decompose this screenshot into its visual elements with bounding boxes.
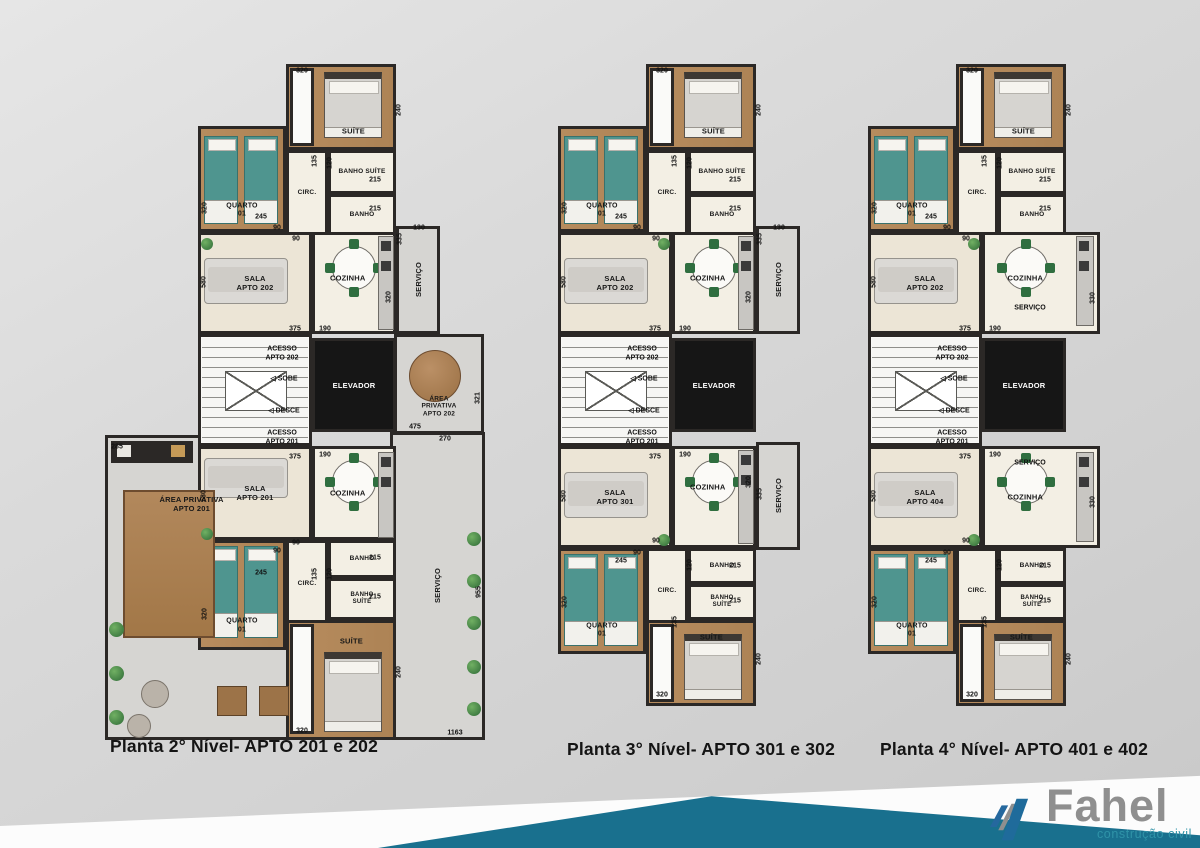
dimension-label: 90 — [962, 236, 970, 245]
dimension-label: 215 — [729, 563, 741, 572]
counter — [1076, 236, 1094, 326]
table-round — [332, 246, 376, 290]
dimension-label: 580 — [561, 490, 570, 502]
dimension-label: 320 — [872, 596, 881, 608]
dimension-label: 240 — [396, 104, 405, 116]
room-label: CIRC. — [658, 189, 677, 197]
dimension-label: 215 — [729, 598, 741, 607]
room-label: SALA APTO 202 — [237, 274, 274, 292]
dimension-label: 135 — [312, 155, 321, 167]
room-label: SALA APTO 202 — [907, 274, 944, 292]
planter — [259, 686, 289, 716]
dimension-label: 285 — [111, 444, 123, 453]
room-label: QUARTO 01 — [892, 623, 933, 640]
dimension-label: 135 — [982, 616, 991, 628]
pouf — [141, 680, 169, 708]
dimension-label: 245 — [255, 570, 267, 579]
plant — [467, 532, 481, 546]
room-banho-inferior: BANHO — [688, 548, 756, 584]
dimension-label: 135 — [982, 155, 991, 167]
dimension-label: 90 — [962, 538, 970, 547]
dimension-label: 190 — [989, 326, 1001, 335]
dimension-label: 320 — [872, 202, 881, 214]
room-banho-suite-superior: BANHO SUÍTE — [328, 150, 396, 194]
room-banho-suite-inferior: BANHO SUÍTE — [998, 584, 1066, 620]
dimension-label: 90 — [292, 540, 300, 549]
room-label: SERVIÇO — [774, 478, 783, 513]
plant — [467, 616, 481, 630]
room-banho-suite-superior: BANHO SUÍTE — [998, 150, 1066, 194]
room-label: ELEVADOR — [693, 381, 736, 390]
dimension-label: 90 — [633, 225, 641, 234]
plant — [109, 666, 124, 681]
dimension-label: 320 — [746, 476, 755, 488]
dimension-label: 245 — [255, 214, 267, 223]
dimension-label: 320 — [746, 291, 755, 303]
dimension-label: 215 — [729, 206, 741, 215]
room-closet-superior — [960, 68, 984, 146]
dimension-label: 120 — [327, 568, 336, 580]
room-label: ÁREA PRIVATIVA APTO 202 — [418, 395, 460, 418]
dimension-label: 320 — [562, 596, 571, 608]
room-elevador: ELEVADOR — [672, 338, 756, 432]
room-closet-inferior — [960, 624, 984, 702]
pouf — [127, 714, 151, 738]
planter — [217, 686, 247, 716]
room-banho-suite-inferior: BANHO SUÍTE — [328, 578, 396, 620]
floorplan-flyer: ÁREA PRIVATIVA APTO 201SERVIÇOÁREA PRIVA… — [0, 0, 1200, 848]
dimension-label: 320 — [296, 68, 308, 77]
room-label: CIRC. — [968, 189, 987, 197]
floorplan-level-2: ÁREA PRIVATIVA APTO 201SERVIÇOÁREA PRIVA… — [105, 62, 490, 740]
dimension-label: 375 — [649, 326, 661, 335]
dimension-label: 245 — [925, 214, 937, 223]
dimension-label: ◁ DESCE — [628, 408, 659, 417]
counter — [738, 236, 754, 330]
room-label: CIRC. — [298, 189, 317, 197]
dimension-label: 320 — [562, 202, 571, 214]
dimension-label: 215 — [1039, 598, 1051, 607]
dimension-label: 335 — [757, 488, 766, 500]
dimension-label: 190 — [989, 452, 1001, 461]
table-round — [1004, 246, 1048, 290]
dimension-label: 120 — [997, 157, 1006, 169]
dimension-label: 320 — [296, 728, 308, 737]
dimension-label: ACESSO APTO 201 — [266, 429, 299, 447]
dimension-label: ACESSO APTO 201 — [626, 429, 659, 447]
fahel-logo-text: Fahel — [1046, 780, 1169, 832]
dimension-label: 580 — [201, 276, 210, 288]
room-label: SALA APTO 404 — [907, 488, 944, 506]
dimension-label: 375 — [959, 326, 971, 335]
room-label: SUÍTE — [700, 633, 723, 642]
room-circulacao-inferior: CIRC. — [286, 540, 328, 628]
room-label: SUÍTE — [342, 127, 365, 136]
dimension-label: 245 — [925, 558, 937, 567]
plant — [467, 660, 481, 674]
dimension-label: 120 — [327, 157, 336, 169]
room-banho-suite-superior: BANHO SUÍTE — [688, 150, 756, 194]
counter-dark — [111, 441, 193, 463]
dimension-label: 215 — [1039, 206, 1051, 215]
room-label: BANHO SUÍTE — [1009, 168, 1056, 176]
room-banho-superior: BANHO — [998, 194, 1066, 236]
room-elevador: ELEVADOR — [982, 338, 1066, 432]
dimension-label: 130 — [773, 225, 785, 234]
room-banho-inferior: BANHO — [328, 540, 396, 578]
dimension-label: 120 — [687, 157, 696, 169]
bed-double — [994, 634, 1052, 700]
dimension-label: 375 — [649, 454, 661, 463]
dimension-label: 215 — [369, 555, 381, 564]
room-label: BANHO SUÍTE — [699, 168, 746, 176]
dimension-label: 120 — [997, 559, 1006, 571]
dimension-label: 580 — [201, 490, 210, 502]
dimension-label: 955 — [476, 586, 485, 598]
dimension-label: 245 — [615, 214, 627, 223]
dimension-label: 135 — [672, 616, 681, 628]
dimension-label: 215 — [369, 206, 381, 215]
room-label: SALA APTO 202 — [597, 274, 634, 292]
dimension-label: ACESSO APTO 202 — [266, 345, 299, 363]
dimension-label: 215 — [369, 594, 381, 603]
dimension-label: 335 — [397, 233, 406, 245]
dimension-label: 240 — [756, 104, 765, 116]
dimension-label: 475 — [409, 424, 421, 433]
dimension-label: 190 — [679, 452, 691, 461]
room-label: CIRC. — [658, 587, 677, 595]
room-elevador: ELEVADOR — [312, 338, 396, 432]
dimension-label: 135 — [312, 568, 321, 580]
dimension-label: 335 — [757, 233, 766, 245]
dimension-label: 375 — [289, 454, 301, 463]
room-label: BANHO SUÍTE — [339, 168, 386, 176]
dimension-label: 240 — [1066, 104, 1075, 116]
room-label: ÁREA PRIVATIVA APTO 201 — [159, 495, 223, 513]
dimension-label: 240 — [756, 653, 765, 665]
dimension-label: ACESSO APTO 202 — [626, 345, 659, 363]
room-label: COZINHA — [1008, 493, 1044, 502]
room-circulacao-superior: CIRC. — [286, 150, 328, 236]
dimension-label: 245 — [615, 558, 627, 567]
dimension-label: ◁ DESCE — [268, 408, 299, 417]
dimension-label: 90 — [273, 548, 281, 557]
dimension-label: 215 — [1039, 177, 1051, 186]
bed-double — [684, 634, 742, 700]
dimension-label: ◁ SOBE — [270, 376, 297, 385]
dimension-label: SERVIÇO — [1014, 460, 1045, 469]
counter — [738, 450, 754, 544]
room-label: SUÍTE — [1010, 633, 1033, 642]
room-label: SERVIÇO — [433, 568, 442, 603]
dimension-label: 190 — [319, 326, 331, 335]
room-label: ELEVADOR — [1003, 381, 1046, 390]
room-label: QUARTO 01 — [222, 618, 263, 635]
dimension-label: 90 — [652, 538, 660, 547]
room-banho-superior: BANHO — [328, 194, 396, 236]
room-label: CIRC. — [298, 580, 317, 588]
dimension-label: 215 — [729, 177, 741, 186]
dimension-label: 580 — [871, 276, 880, 288]
room-label: SERVIÇO — [774, 262, 783, 297]
room-banho-superior: BANHO — [688, 194, 756, 236]
plant — [109, 622, 124, 637]
room-banho-suite-inferior: BANHO SUÍTE — [688, 584, 756, 620]
room-circulacao-superior: CIRC. — [956, 150, 998, 236]
dimension-label: 190 — [679, 326, 691, 335]
room-label: COZINHA — [690, 483, 726, 492]
room-label: COZINHA — [690, 274, 726, 283]
dimension-label: 240 — [1066, 653, 1075, 665]
floorplan-level-4: SUÍTEQUARTO 01CIRC.BANHO SUÍTEBANHOSALA … — [868, 62, 1103, 707]
room-closet-superior — [650, 68, 674, 146]
dimension-label: 375 — [289, 326, 301, 335]
fahel-logo-tagline: construção civil — [1056, 827, 1192, 841]
dimension-label: 580 — [561, 276, 570, 288]
dimension-label: 90 — [292, 236, 300, 245]
room-circulacao-superior: CIRC. — [646, 150, 688, 236]
dimension-label: 90 — [943, 225, 951, 234]
counter — [378, 452, 394, 538]
dimension-label: 130 — [413, 225, 425, 234]
dimension-label: 1163 — [447, 730, 462, 739]
dimension-label: SERVIÇO — [1014, 305, 1045, 314]
dimension-label: ACESSO APTO 202 — [936, 345, 969, 363]
dimension-label: 330 — [1090, 496, 1099, 508]
room-label: COZINHA — [330, 274, 366, 283]
caption-level-3: Planta 3° Nível- APTO 301 e 302 — [567, 739, 835, 760]
dimension-label: 320 — [966, 68, 978, 77]
room-label: ELEVADOR — [333, 381, 376, 390]
dimension-label: 120 — [687, 559, 696, 571]
caption-level-2: Planta 2° Nível- APTO 201 e 202 — [110, 736, 378, 757]
plant — [201, 238, 213, 250]
dimension-label: 215 — [369, 177, 381, 186]
dimension-label: 90 — [943, 550, 951, 559]
dimension-label: 135 — [672, 155, 681, 167]
plant — [201, 528, 213, 540]
dimension-label: 320 — [202, 202, 211, 214]
room-label: COZINHA — [330, 489, 366, 498]
room-label: SALA APTO 301 — [597, 488, 634, 506]
room-label: SUÍTE — [702, 127, 725, 136]
room-label: QUARTO 01 — [582, 623, 623, 640]
floorplan-level-3: SUÍTEQUARTO 01CIRC.BANHO SUÍTEBANHOSALA … — [558, 62, 805, 707]
plant — [109, 710, 124, 725]
dimension-label: 270 — [439, 436, 451, 445]
dimension-label: 320 — [202, 608, 211, 620]
fahel-logo-icon — [985, 790, 1043, 844]
dimension-label: 190 — [319, 452, 331, 461]
bed-double — [324, 652, 382, 732]
room-label: SERVIÇO — [414, 262, 423, 297]
plant — [467, 702, 481, 716]
dimension-label: 375 — [959, 454, 971, 463]
room-closet-superior — [290, 68, 314, 146]
room-label: COZINHA — [1008, 274, 1044, 283]
dimension-label: 90 — [273, 225, 281, 234]
dimension-label: 320 — [656, 692, 668, 701]
room-banho-inferior: BANHO — [998, 548, 1066, 584]
table-round — [692, 246, 736, 290]
room-label: SALA APTO 201 — [237, 484, 274, 502]
dimension-label: 90 — [652, 236, 660, 245]
dimension-label: ACESSO APTO 201 — [936, 429, 969, 447]
dimension-label: 320 — [656, 68, 668, 77]
room-closet-inferior — [290, 624, 314, 734]
dimension-label: 321 — [475, 392, 484, 404]
counter — [378, 236, 394, 330]
dimension-label: 330 — [1090, 292, 1099, 304]
dimension-label: 215 — [1039, 563, 1051, 572]
dimension-label: 580 — [871, 490, 880, 502]
dimension-label: ◁ SOBE — [630, 376, 657, 385]
dimension-label: 90 — [633, 550, 641, 559]
dimension-label: 240 — [396, 666, 405, 678]
room-closet-inferior — [650, 624, 674, 702]
room-label: CIRC. — [968, 587, 987, 595]
dimension-label: 320 — [386, 291, 395, 303]
caption-level-4: Planta 4° Nível- APTO 401 e 402 — [880, 739, 1148, 760]
room-label: SUÍTE — [1012, 127, 1035, 136]
dimension-label: 320 — [966, 692, 978, 701]
room-label: SUÍTE — [340, 637, 363, 646]
dimension-label: ◁ DESCE — [938, 408, 969, 417]
dimension-label: ◁ SOBE — [940, 376, 967, 385]
